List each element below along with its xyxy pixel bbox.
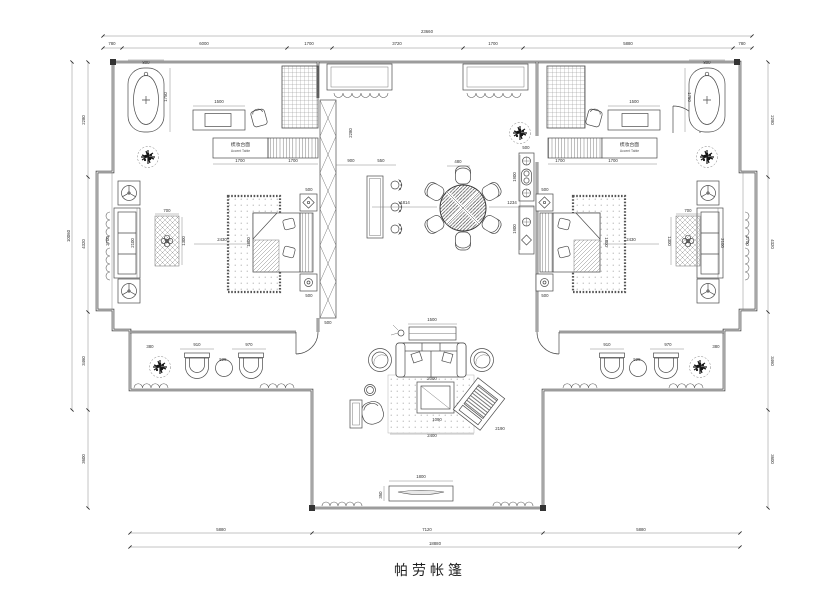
- dimension-label: 7120: [422, 527, 432, 532]
- counter-label-cn: 梳妆台面: [620, 141, 639, 148]
- floor-plan-sheet: 梳妆台面 Accent Table: [0, 0, 837, 592]
- living-room: [350, 325, 505, 501]
- plant: [150, 357, 171, 378]
- dimension-label: 1500: [629, 99, 639, 104]
- round-side-table: [216, 360, 233, 377]
- counter-label-cn: 梳妆台面: [231, 141, 250, 148]
- dimension-label: 1700: [288, 158, 298, 163]
- dimension-label: 500: [541, 293, 549, 298]
- dimension-label: 1700: [488, 41, 498, 46]
- dimension-label: 1900: [512, 224, 517, 234]
- dimension-label: 700: [684, 208, 692, 213]
- vanity-dresser: [193, 107, 268, 130]
- door-right-sitting: [537, 332, 559, 354]
- blanket: [574, 240, 600, 272]
- dimension-label: 3460: [770, 356, 775, 366]
- dimension-label: 2100: [130, 238, 135, 248]
- dimension-label: 2100: [720, 238, 725, 248]
- swivel-chair: [369, 349, 392, 372]
- dining-chair: [456, 166, 471, 184]
- bar-stool: [391, 224, 402, 235]
- dimension-label: 500: [305, 293, 313, 298]
- dimension-label: 1300: [181, 236, 186, 246]
- dimension-label: 5880: [636, 527, 646, 532]
- dimension-label: 500: [305, 187, 313, 192]
- plant: [697, 147, 718, 168]
- dimension-label: 1700: [304, 41, 314, 46]
- dimension-label: 780: [738, 41, 746, 46]
- dimension-label: 2000: [427, 376, 437, 381]
- bar-stool: [391, 180, 402, 191]
- dimension-label: 5880: [216, 527, 226, 532]
- dimension-label: 700: [163, 208, 171, 213]
- dimension-label: 525: [633, 357, 641, 362]
- dimension-labels: 2366078060001700372017005880780588071205…: [66, 29, 775, 546]
- headboard: [300, 213, 313, 272]
- dimension-label: 4320: [81, 239, 86, 249]
- dining-area: [423, 166, 503, 250]
- dimension-label: 500: [324, 320, 332, 325]
- dimension-label: 2430: [626, 237, 636, 242]
- dimension-label: 6000: [199, 41, 209, 46]
- floor-plan-drawing: 梳妆台面 Accent Table: [0, 0, 837, 592]
- dimension-label: 3600: [770, 454, 775, 464]
- nightstand: [536, 194, 553, 211]
- accent-table-counter-right: 梳妆台面 Accent Table: [548, 138, 657, 158]
- tub-chair: [600, 353, 625, 379]
- fan-side-table: [118, 279, 140, 303]
- dimension-label: 1814: [400, 200, 410, 205]
- dimension-label: 1900: [512, 172, 517, 182]
- left-bathroom: 梳妆台面 Accent Table: [128, 66, 318, 158]
- dining-chair: [456, 232, 471, 250]
- dimension-label: 3600: [81, 454, 86, 464]
- door-left-sitting: [296, 332, 318, 354]
- shower-area: [547, 66, 585, 128]
- drawing-title: 帕劳帐篷: [394, 563, 466, 579]
- dimension-label: 2280: [81, 115, 86, 125]
- entry-closets: [327, 64, 528, 90]
- dimension-label: 2400: [427, 433, 437, 438]
- console-column: [519, 153, 534, 254]
- dimension-label: 4320: [770, 239, 775, 249]
- dimension-label: 910: [193, 342, 201, 347]
- dimension-label: 350: [378, 491, 383, 499]
- dimension-label: 1800: [604, 237, 609, 247]
- right-window-seat: [676, 181, 723, 303]
- counter-label-en: Accent Table: [231, 149, 250, 153]
- sofa: [396, 343, 466, 377]
- fan-side-table: [697, 279, 719, 303]
- vanity-dresser: [585, 107, 660, 130]
- left-bedroom: [228, 100, 336, 318]
- bench: [697, 208, 723, 278]
- side-table: [350, 400, 362, 428]
- dimension-label: 1800: [416, 474, 426, 479]
- dimension-label: 18880: [429, 541, 442, 546]
- bench: [114, 208, 140, 278]
- sofa-console: [391, 325, 456, 340]
- column-marker: [309, 505, 315, 511]
- dimension-label: 2430: [217, 237, 227, 242]
- nightstand: [300, 274, 317, 291]
- dimension-label: 1090: [432, 417, 442, 422]
- dimension-label: 3720: [392, 41, 402, 46]
- side-stool: [365, 385, 376, 396]
- dimension-label: 2700: [105, 236, 110, 246]
- column-marker: [734, 59, 740, 65]
- plant: [138, 147, 159, 168]
- right-bathroom: 梳妆台面 Accent Table: [547, 66, 725, 158]
- dimension-label: 500: [541, 187, 549, 192]
- dimension-label: 10060: [66, 229, 71, 242]
- coffee-table: [417, 382, 454, 413]
- dimension-label: 910: [603, 342, 611, 347]
- pillow: [282, 218, 295, 230]
- dimension-label: 970: [245, 342, 253, 347]
- dimension-label: 550: [377, 158, 385, 163]
- hatched-rug: [155, 216, 179, 266]
- dimension-label: 2280: [770, 115, 775, 125]
- dimension-label: 1800: [246, 237, 251, 247]
- dimension-label: 1500: [214, 99, 224, 104]
- dimension-label: 1700: [555, 158, 565, 163]
- lattice-screen: [320, 100, 336, 318]
- dimension-label: 3460: [81, 356, 86, 366]
- tub-chair: [239, 353, 264, 379]
- headboard: [540, 213, 553, 272]
- dimension-label: 800: [142, 60, 150, 65]
- dimension-label: 1300: [667, 236, 672, 246]
- dimension-label: 1700: [608, 158, 618, 163]
- dimension-label: 5880: [623, 41, 633, 46]
- corner-armchair: [359, 399, 386, 426]
- pillow: [282, 246, 295, 258]
- nightstand: [300, 194, 317, 211]
- plant: [690, 357, 711, 378]
- closet: [463, 64, 528, 90]
- dimension-lines: [70, 34, 769, 548]
- nightstand: [536, 274, 553, 291]
- right-bedroom: [536, 194, 625, 292]
- plant: [510, 123, 531, 144]
- dimension-label: 380: [146, 344, 154, 349]
- dimension-label: 970: [664, 342, 672, 347]
- dimension-label: 1750: [163, 92, 168, 102]
- dimension-label: 23660: [421, 29, 434, 34]
- shower-area: [282, 66, 318, 128]
- dimension-label: 480: [454, 159, 462, 164]
- dimension-label: 2700: [745, 236, 750, 246]
- dimension-label: 1750: [687, 92, 692, 102]
- hatched-rug: [676, 216, 700, 266]
- fan-side-table: [697, 181, 719, 205]
- round-side-table: [630, 360, 647, 377]
- pillow: [557, 246, 570, 258]
- pillow: [557, 218, 570, 230]
- dimension-label: 2280: [348, 128, 353, 138]
- column-marker: [540, 505, 546, 511]
- bathtub: [128, 68, 164, 132]
- tub-chair: [185, 353, 210, 379]
- bathtub: [689, 68, 725, 132]
- dimension-label: 1700: [235, 158, 245, 163]
- dimension-label: 1500: [427, 317, 437, 322]
- blanket: [253, 240, 279, 272]
- dimension-label: 780: [108, 41, 116, 46]
- dimension-label: 800: [703, 60, 711, 65]
- closet: [327, 64, 392, 90]
- fireplace-console: [389, 486, 453, 501]
- dimension-label: 900: [347, 158, 355, 163]
- dimension-label: 525: [219, 357, 227, 362]
- counter-label-en: Accent Table: [620, 149, 639, 153]
- swivel-chair: [471, 349, 494, 372]
- dimension-label: 500: [522, 145, 530, 150]
- tub-chair: [654, 353, 679, 379]
- dimension-label: 2190: [495, 426, 505, 431]
- dimension-label: 1234: [507, 200, 517, 205]
- left-window-seat: [114, 181, 179, 303]
- accent-table-counter-left: 梳妆台面 Accent Table: [213, 138, 318, 158]
- dimension-label: 380: [712, 344, 720, 349]
- column-marker: [110, 59, 116, 65]
- fan-side-table: [118, 181, 140, 205]
